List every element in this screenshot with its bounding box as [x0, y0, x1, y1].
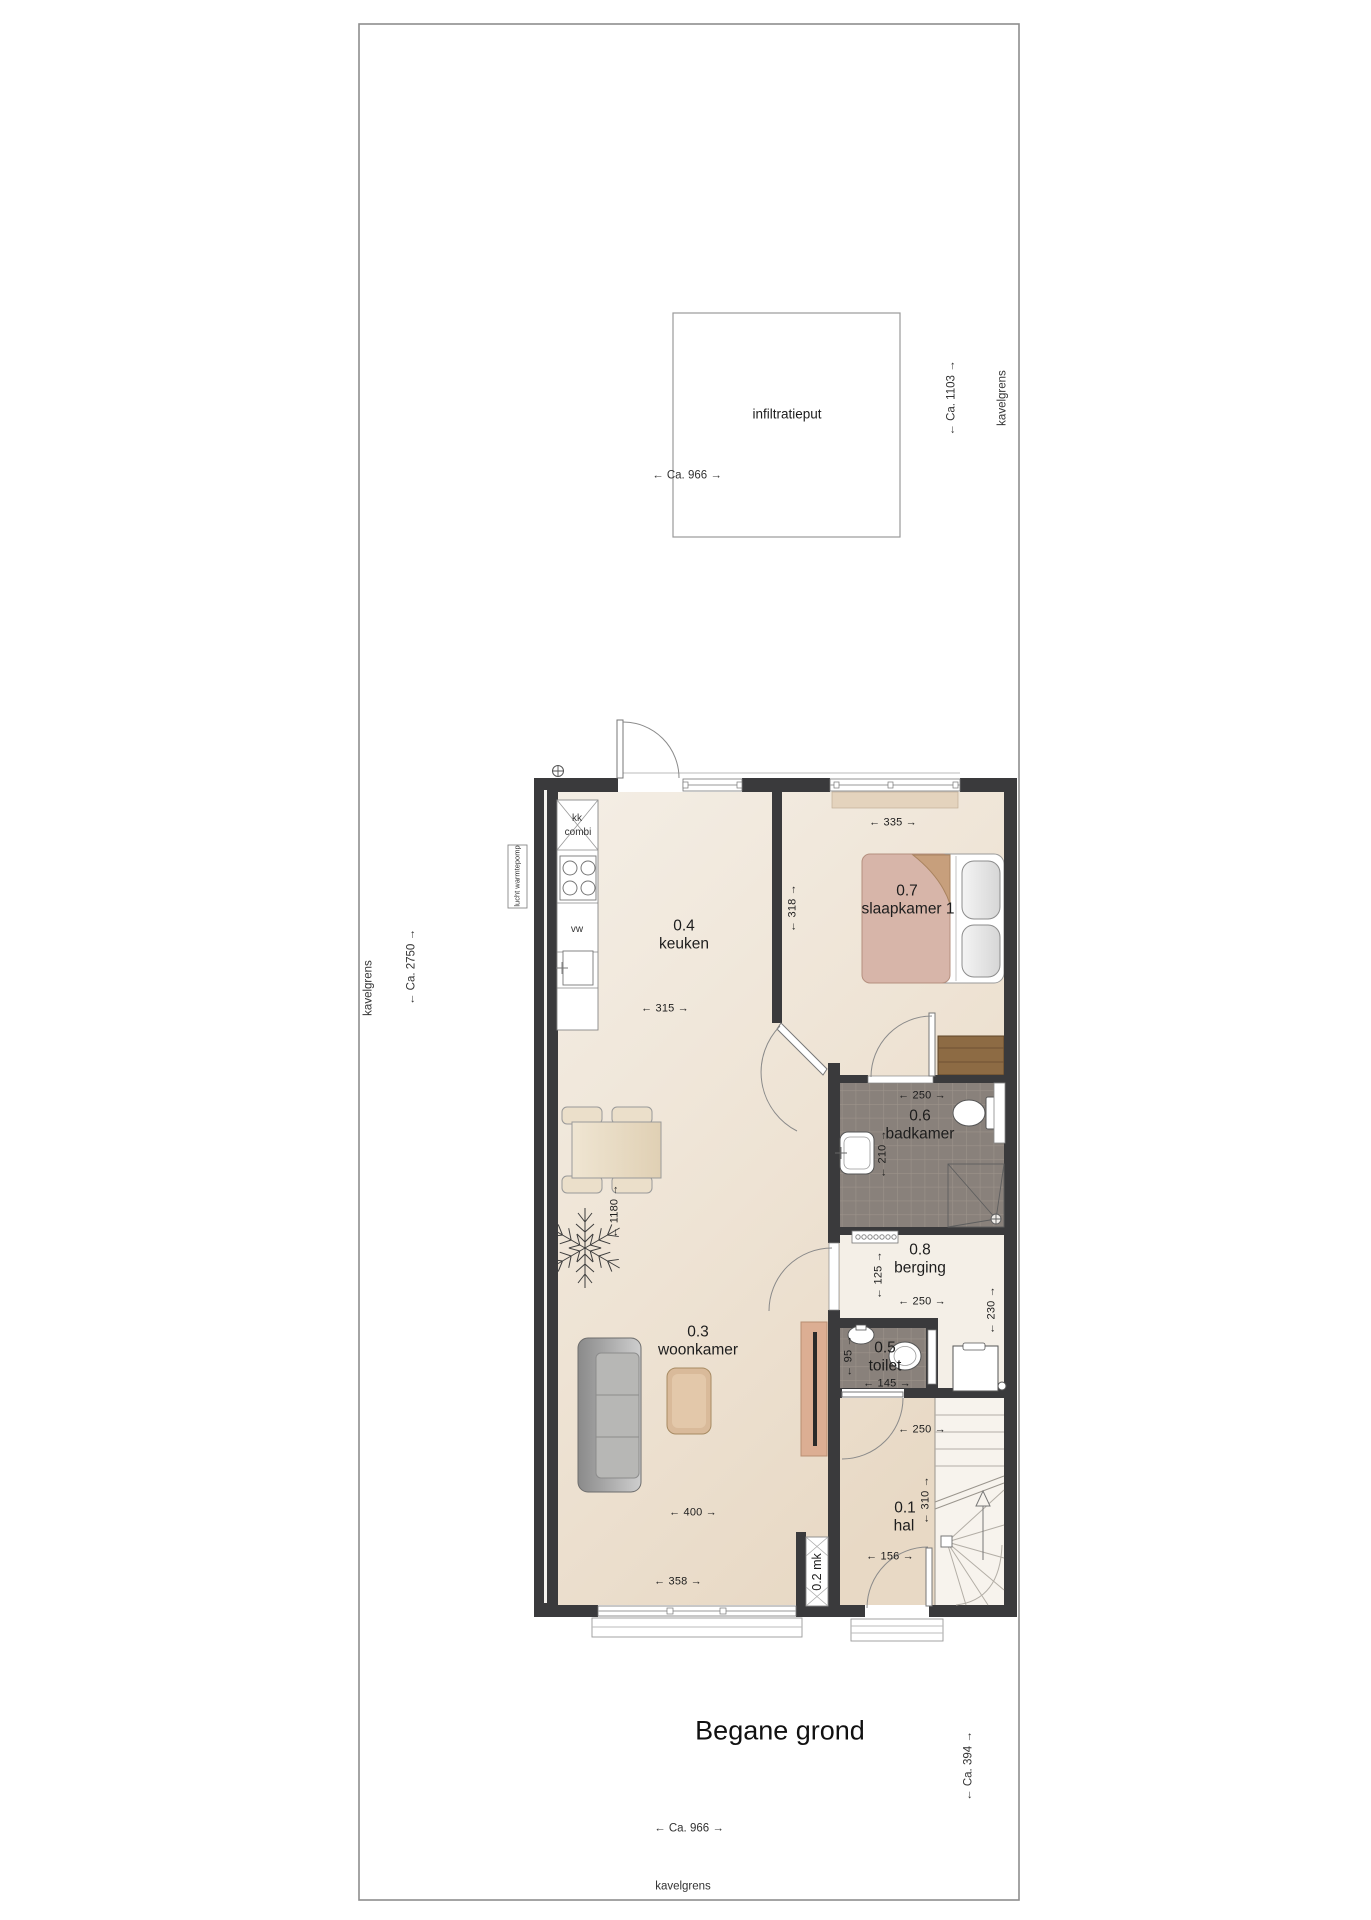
- wc-bowl: [953, 1100, 985, 1126]
- washing-machine: [953, 1343, 998, 1391]
- room-name-slaapkamer: slaapkamer 1: [861, 901, 954, 917]
- backdoor-opening: [618, 779, 683, 791]
- dim-toilet-width: ← 145 →: [863, 1379, 911, 1390]
- room-name-hal: hal: [894, 1518, 915, 1534]
- infiltratieput-box: [673, 313, 900, 537]
- room-number-woonkamer: 0.3: [687, 1324, 709, 1340]
- badkamer-door-threshold: [868, 1076, 933, 1083]
- coffee-table: [667, 1368, 711, 1434]
- floorplan-drawing: [0, 0, 1371, 1920]
- dim-woonkamer-window: ← 358 →: [654, 1577, 702, 1588]
- sofa: [578, 1338, 641, 1492]
- window-sill: [832, 792, 958, 808]
- room-number-hal: 0.1: [894, 1500, 916, 1516]
- fridge-label-line1: kk: [572, 814, 582, 824]
- site-dim-top: ← Ca. 966 →: [652, 470, 722, 482]
- kavelgrens-bottom: kavelgrens: [655, 1881, 711, 1893]
- kitchen-window: [683, 779, 742, 791]
- dim-keuken-depth: ← 318 →: [788, 884, 799, 932]
- dim-badkamer-width: ← 250 →: [898, 1091, 946, 1102]
- dining-chair: [612, 1107, 652, 1124]
- wall-woonkamer-right-lower: [828, 1310, 840, 1617]
- wall-meterkast: [796, 1532, 806, 1605]
- room-number-badkamer: 0.6: [909, 1108, 931, 1124]
- wall-keuken-slaapkamer: [772, 792, 782, 1023]
- tv: [813, 1332, 817, 1446]
- tv-sideboard: [801, 1322, 827, 1456]
- dining-chair: [562, 1176, 602, 1193]
- pillow: [962, 861, 1000, 919]
- dim-hal-depth: ← 310 →: [921, 1476, 932, 1524]
- dim-toilet-depth: ← 95 →: [844, 1335, 855, 1377]
- wall-top: [534, 778, 618, 792]
- infiltratieput-label: infiltratieput: [752, 407, 821, 421]
- dim-hal-width: ← 250 →: [898, 1425, 946, 1436]
- wardrobe: [938, 1036, 1004, 1075]
- site-dim-right-lower: ← Ca. 394 →: [963, 1731, 975, 1801]
- room-name-berging: berging: [894, 1260, 946, 1276]
- floorplan-page: Begane grond infiltratieput ← Ca. 966 → …: [0, 0, 1371, 1920]
- slaapkamer-window: [830, 779, 960, 808]
- room-number-slaapkamer: 0.7: [896, 883, 918, 899]
- dining-table: [572, 1122, 661, 1178]
- room-number-toilet: 0.5: [874, 1340, 896, 1356]
- newel-post: [941, 1536, 952, 1547]
- wall-bottom: [534, 1605, 598, 1617]
- room-number-berging: 0.8: [909, 1242, 931, 1258]
- wall-badkamer-top: [933, 1075, 1004, 1083]
- bed: [862, 854, 1004, 983]
- heatpump-label: lucht warmtepomp: [513, 845, 521, 906]
- kavelgrens-right: kavelgrens: [997, 370, 1009, 426]
- wall-badkamer-top: [840, 1075, 868, 1083]
- page-title: Begane grond: [695, 1718, 865, 1745]
- woonkamer-window: [592, 1606, 802, 1637]
- dim-berging-width: ← 250 →: [898, 1297, 946, 1308]
- room-number-keuken: 0.4: [673, 918, 695, 934]
- dim-berging-right-depth: ← 230 →: [987, 1286, 998, 1334]
- wall-toilet-top: [828, 1318, 938, 1328]
- room-label-meterkast: 0.2 mk: [811, 1553, 824, 1591]
- dim-hal-lower-width: ← 156 →: [866, 1552, 914, 1563]
- room-name-toilet: toilet: [869, 1358, 902, 1374]
- dim-slaapkamer-width: ← 335 →: [869, 818, 917, 829]
- dim-woonkamer-width: ← 400 →: [669, 1508, 717, 1519]
- wall-top: [742, 778, 830, 792]
- site-dim-right-upper: ← Ca. 1103 →: [946, 360, 958, 435]
- wall-right: [1004, 778, 1017, 1617]
- shelf: [994, 1083, 1005, 1143]
- pillow: [962, 925, 1000, 977]
- dim-interior-depth: ← 1180 →: [610, 1184, 621, 1237]
- wall-bottom: [929, 1605, 1017, 1617]
- site-dim-left: ← Ca. 2750 →: [406, 929, 418, 1005]
- dim-badkamer-depth: ← 210 →: [878, 1130, 889, 1178]
- room-name-woonkamer: woonkamer: [658, 1342, 738, 1358]
- berging-woonkamer-opening: [829, 1243, 839, 1310]
- duct-shaft: [928, 1330, 936, 1384]
- frontdoor-opening: [865, 1606, 929, 1616]
- dishwasher-label: vw: [571, 925, 583, 935]
- room-name-keuken: keuken: [659, 936, 709, 952]
- fridge-label-line2: combi: [565, 828, 592, 838]
- dim-keuken-width: ← 315 →: [641, 1004, 689, 1015]
- kavelgrens-left: kavelgrens: [363, 960, 375, 1016]
- site-dim-bottom: ← Ca. 966 →: [654, 1823, 724, 1835]
- dining-chair: [562, 1107, 602, 1124]
- room-name-badkamer: badkamer: [886, 1126, 955, 1142]
- vent-grille: [852, 1231, 898, 1243]
- cavity-wall-seam: [544, 790, 547, 1603]
- frontdoor-threshold: [851, 1619, 943, 1641]
- dim-berging-depth: ← 125 →: [874, 1251, 885, 1299]
